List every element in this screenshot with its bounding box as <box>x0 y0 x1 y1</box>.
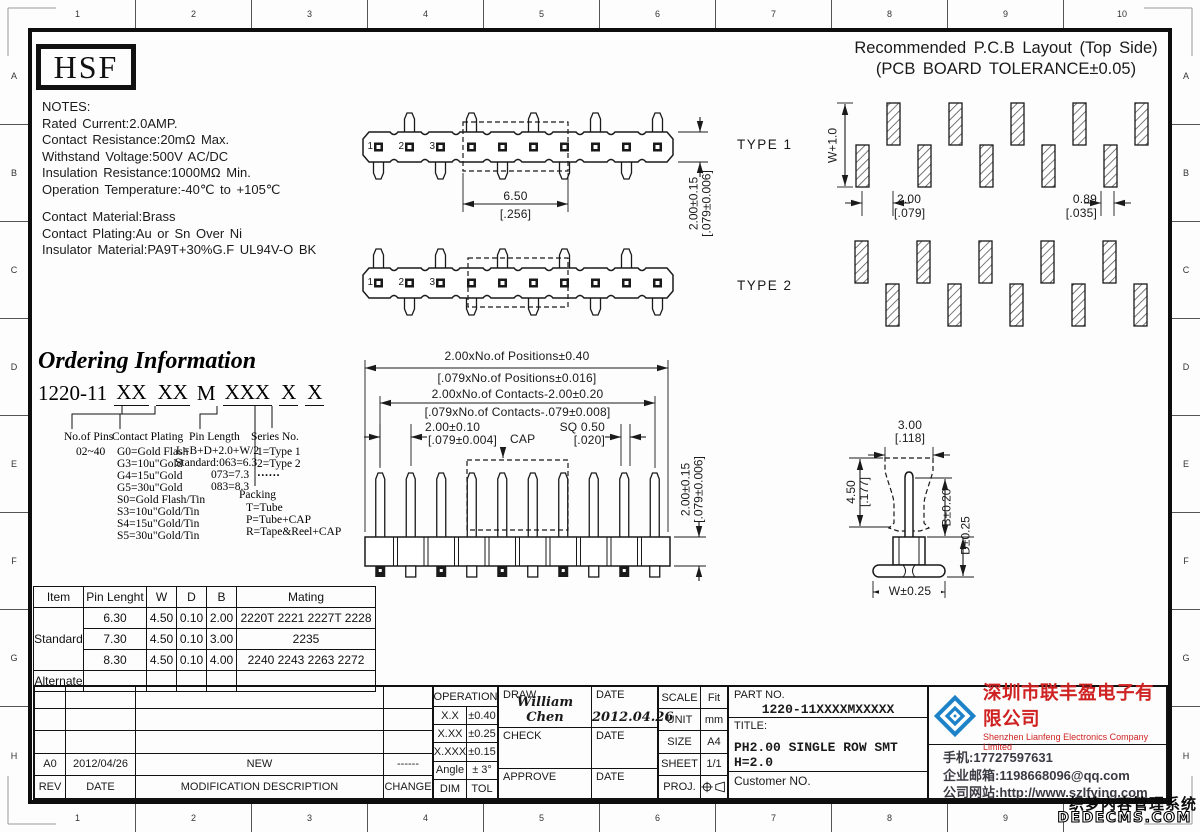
ordering-code: 1220-11XXXXMXXXXX <box>38 380 324 406</box>
connector-geometry <box>363 103 1148 577</box>
note-line: NOTES: <box>42 99 372 116</box>
plating-item: G4=15u"Gold <box>117 470 183 482</box>
packing-header: Packing <box>239 489 276 501</box>
series-item: 2=Type 2 <box>257 458 301 470</box>
dim-pad-width-in: [.035] <box>1037 206 1097 220</box>
pin-number: 2 <box>394 277 404 288</box>
date-label: DATE <box>596 689 625 701</box>
dim-pitch-mm: 2.00±0.10 <box>425 420 480 434</box>
dim-cap-w-mm: 3.00 <box>879 418 941 432</box>
series-item: 1=Type 1 <box>257 446 301 458</box>
drawing-sheet: 12345678910 12345678910 ABCDEFGH ABCDEFG… <box>0 0 1200 832</box>
dim-contacts-in: [.079xNo.of Contacts-.079±0.008] <box>380 405 655 419</box>
spec-header-row: Item Pin Lenght W D B Mating <box>34 587 376 608</box>
note-line: Rated Current:2.0AMP. <box>42 116 372 133</box>
dim-cap-span-mm: 6.50 <box>468 189 563 203</box>
pcb-layout-title: Recommended P.C.B Layout (Top Side) (PCB… <box>850 38 1162 80</box>
spec-row: 7.30 4.50 0.10 3.00 2235 <box>34 629 376 650</box>
dim-cap-h: 4.50 [.177] <box>845 463 871 521</box>
plating-item: G3=10u"Gold <box>117 458 183 470</box>
packing-item: T=Tube <box>246 502 283 514</box>
rev-date: 2012/04/26 <box>66 754 136 776</box>
company-block: 深圳市联丰盈电子有限公司 Shenzhen Lianfeng Electroni… <box>929 685 1168 800</box>
size-value: A4 <box>701 731 727 753</box>
spec-row: 8.30 4.50 0.10 4.00 2240 2243 2263 2272 <box>34 650 376 671</box>
date-label: DATE <box>596 771 625 783</box>
pin-number: 2 <box>394 141 404 152</box>
dim-pad-height: W+1.0 <box>827 114 840 178</box>
note-line: Operation Temperature:-40℃ to +105℃ <box>42 182 372 199</box>
operation-header: OPERATION <box>434 687 497 707</box>
change-header: CHANGE <box>384 776 432 798</box>
notes-block: NOTES: Rated Current:2.0AMP. Contact Res… <box>42 99 372 259</box>
unit-value: mm <box>701 709 727 731</box>
rev-change: ------ <box>384 754 432 776</box>
series-item: ······ <box>257 470 280 482</box>
operation-tolerance-table: OPERATION X.X ±0.40 X.XX ±0.25 X.XXX ±0.… <box>434 685 499 800</box>
scale-value: Fit <box>701 687 727 709</box>
scale-label: SCALE <box>659 687 701 709</box>
dim-positions-mm: 2.00xNo.of Positions±0.40 <box>366 349 668 363</box>
part-number: 1220-11XXXXMXXXXX <box>734 702 922 717</box>
dim-d: D±0.25 <box>960 504 973 568</box>
approve-label: APPROVE <box>503 771 556 783</box>
revision-table: A0 2012/04/26 NEW ------ REV DATE MODIFI… <box>33 685 434 800</box>
dim-positions-in: [.079xNo.of Positions±0.016] <box>366 371 668 385</box>
part-no-label: PART NO. <box>734 689 785 701</box>
unit-label: UNIT <box>659 709 701 731</box>
pins-value: 02~40 <box>76 446 105 458</box>
dim-contacts-mm: 2.00xNo.of Contacts-2.00±0.20 <box>380 387 655 401</box>
pin-number: 3 <box>425 141 435 152</box>
length-item: L=B+D+2.0+W/2 <box>176 445 259 457</box>
spec-table: Item Pin Lenght W D B Mating Standard 6.… <box>33 586 376 692</box>
series-header: Series No. <box>251 431 299 443</box>
note-line: Insulator Material:PA9T+30%G.F UL94V-O B… <box>42 242 372 259</box>
signature-block: DRAW William Chen DATE 2012.04.26 CHECK … <box>499 685 659 800</box>
date-label: DATE <box>596 730 625 742</box>
size-label: SIZE <box>659 731 701 753</box>
rev-desc: NEW <box>136 754 384 776</box>
sheet-value: 1/1 <box>701 754 727 776</box>
cap-label: CAP <box>510 432 535 446</box>
proj-label: PROJ. <box>659 776 701 798</box>
modification-header: MODIFICATION DESCRIPTION <box>136 776 384 798</box>
ordering-title: Ordering Information <box>38 348 256 375</box>
dim-pad-width-mm: 0.89 <box>1040 192 1097 206</box>
plating-item: G5=30u"Gold <box>117 482 183 494</box>
plating-item: S4=15u"Gold/Tin <box>117 518 199 530</box>
length-item: 073=7.3 <box>211 469 249 481</box>
note-line: Contact Material:Brass <box>42 209 372 226</box>
drawer-signature: William Chen <box>499 695 591 725</box>
plating-item: S0=Gold Flash/Tin <box>117 494 205 506</box>
note-line: Withstand Voltage:500V AC/DC <box>42 149 372 166</box>
dim-topview-height: 2.00±0.15 [.079±0.006] <box>687 148 714 260</box>
part-block: PART NO. 1220-11XXXXMXXXXX TITLE: PH2.00… <box>729 685 929 800</box>
dim-pitch-in: [.079±0.004] <box>428 433 497 447</box>
plating-item: S5=30u"Gold/Tin <box>117 530 199 542</box>
company-name-cn: 深圳市联丰盈电子有限公司 <box>983 679 1162 731</box>
projection-symbol <box>701 776 727 798</box>
dim-sq-mm: SQ 0.50 <box>545 420 605 434</box>
draw-date: 2012.04.26 <box>592 710 657 725</box>
watermark-dedecms: DEDECMS.COM <box>1057 810 1192 826</box>
drawing-title: PH2.00 SINGLE ROW SMT H=2.0 <box>734 740 922 770</box>
pin-number: 1 <box>363 277 373 288</box>
hsf-logo: HSF <box>36 44 136 90</box>
plating-item: S3=10u"Gold/Tin <box>117 506 199 518</box>
dim-sq-in: [.020] <box>545 433 605 447</box>
pin-number: 3 <box>425 277 435 288</box>
check-label: CHECK <box>503 730 542 742</box>
length-item: Standard:063=6.3 <box>175 457 257 469</box>
plating-header: Contact Plating <box>112 431 183 443</box>
note-line: Contact Plating:Au or Sn Over Ni <box>42 226 372 243</box>
note-line: Insulation Resistance:1000MΩ Min. <box>42 165 372 182</box>
rev-header: REV <box>35 776 66 798</box>
pin-number: 1 <box>363 141 373 152</box>
spec-row: Standard 6.30 4.50 0.10 2.00 2220T 2221 … <box>34 608 376 629</box>
type1-label: TYPE 1 <box>737 137 793 152</box>
info-block: SCALE Fit UNIT mm SIZE A4 SHEET 1/1 PROJ… <box>659 685 729 800</box>
company-email: 企业邮箱:1198668096@qq.com <box>943 767 1166 785</box>
pins-header: No.of Pins <box>64 431 113 443</box>
dim-body-height: 2.00±0.15 [.079±0.006] <box>679 434 706 546</box>
dim-cap-w-in: [.118] <box>879 431 941 445</box>
dim-pad-pitch-mm: 2.00 <box>897 192 921 206</box>
note-line: Contact Resistance:20mΩ Max. <box>42 132 372 149</box>
packing-item: P=Tube+CAP <box>246 514 311 526</box>
third-angle-projection-icon <box>701 780 727 794</box>
dim-w: W±0.25 <box>879 584 941 598</box>
type2-label: TYPE 2 <box>737 278 793 293</box>
customer-no-label: Customer NO. <box>729 772 927 798</box>
sheet-label: SHEET <box>659 754 701 776</box>
company-logo-icon <box>933 694 977 738</box>
company-phone: 手机:17727597631 <box>943 749 1166 767</box>
rev-value: A0 <box>35 754 66 776</box>
length-header: Pin Length <box>189 431 240 443</box>
dim-cap-span-in: [.256] <box>468 207 563 221</box>
dim-pad-pitch-in: [.079] <box>894 206 925 220</box>
title-label: TITLE: <box>734 720 767 732</box>
packing-item: R=Tape&Reel+CAP <box>246 526 341 538</box>
date-header: DATE <box>66 776 136 798</box>
dim-b: B±0.20 <box>941 477 954 539</box>
